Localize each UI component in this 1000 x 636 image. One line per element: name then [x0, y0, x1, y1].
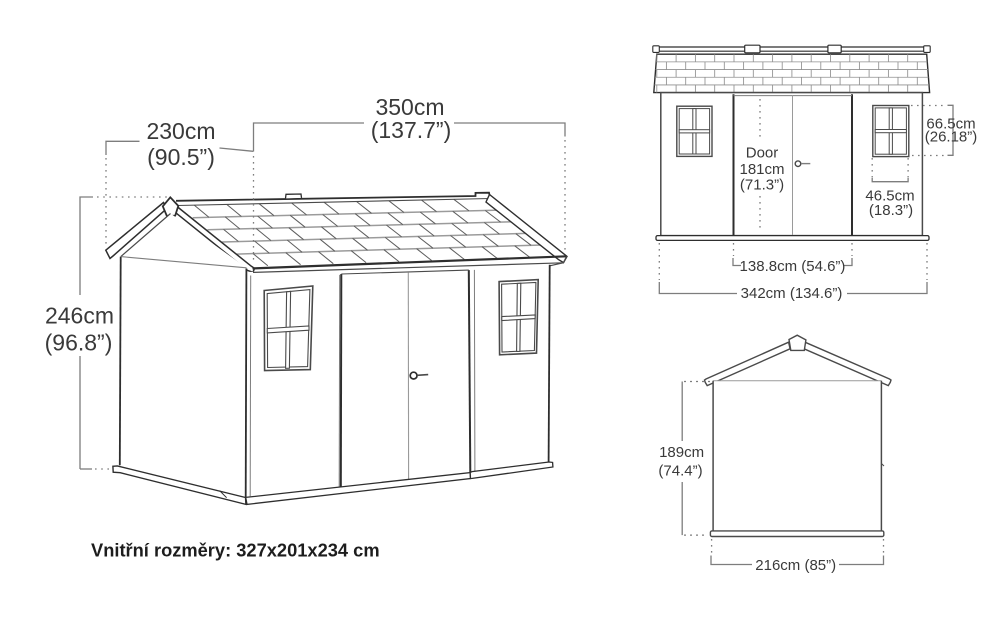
- svg-text:(26.18”): (26.18”): [925, 129, 978, 146]
- svg-text:216cm (85”): 216cm (85”): [755, 557, 836, 574]
- svg-text:Vnitřní rozměry: 327x201x234 c: Vnitřní rozměry: 327x201x234 cm: [91, 540, 380, 561]
- svg-text:138.8cm (54.6”): 138.8cm (54.6”): [740, 258, 846, 275]
- svg-text:(90.5”): (90.5”): [147, 144, 215, 170]
- svg-text:(137.7”): (137.7”): [371, 117, 452, 143]
- svg-text:181cm: 181cm: [739, 161, 784, 178]
- svg-text:(96.8”): (96.8”): [45, 330, 113, 356]
- svg-text:246cm: 246cm: [45, 303, 114, 329]
- svg-text:230cm: 230cm: [146, 118, 215, 144]
- svg-text:(74.4”): (74.4”): [658, 462, 702, 479]
- svg-text:189cm: 189cm: [659, 444, 704, 461]
- svg-text:342cm (134.6”): 342cm (134.6”): [741, 285, 843, 302]
- svg-text:(18.3”): (18.3”): [869, 202, 913, 219]
- svg-text:(71.3”): (71.3”): [740, 177, 784, 194]
- svg-text:Door: Door: [746, 145, 779, 162]
